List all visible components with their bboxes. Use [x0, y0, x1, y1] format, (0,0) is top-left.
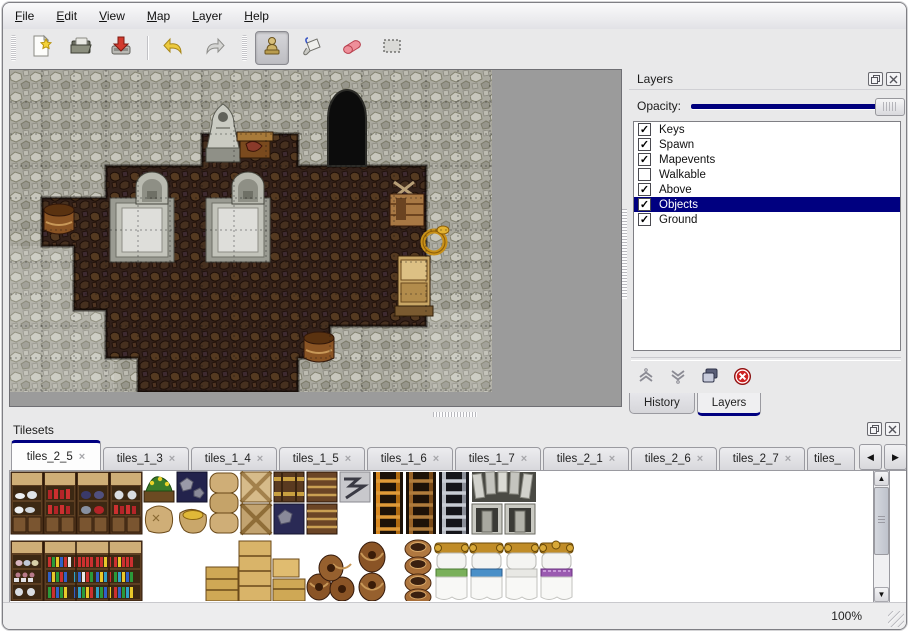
eraser-tool-button[interactable]	[335, 31, 369, 65]
duplicate-layer-button[interactable]	[699, 365, 721, 387]
selection-rect-icon	[379, 33, 405, 64]
tileset-tab[interactable]: tiles_1_3 ×	[103, 447, 189, 470]
shelf-pots-tile	[77, 472, 109, 534]
redo-icon	[201, 33, 227, 64]
tilesets-panel: Tilesets tiles_2_5 × tiles_1_3 × tiles_1…	[3, 421, 906, 603]
layers-panel: Layers Opacity: ✓ Keys	[629, 69, 905, 415]
tileset-tab[interactable]: tiles_2_1 ×	[543, 447, 629, 470]
menu-layer[interactable]: Layer	[192, 9, 222, 23]
save-button[interactable]	[104, 31, 138, 65]
layer-row-keys[interactable]: ✓ Keys	[634, 122, 900, 137]
tombstone-right	[232, 172, 264, 204]
bed-green-tile	[435, 543, 469, 600]
layer-visibility-checkbox[interactable]: ✓	[638, 183, 651, 196]
crate-x2-tile	[241, 504, 271, 534]
tileset-vertical-scrollbar[interactable]: ▲ ▼	[873, 470, 890, 603]
layer-name: Above	[659, 184, 692, 196]
tileset-tab-label: tiles_2_5	[27, 451, 73, 463]
tombstone-left	[136, 172, 168, 204]
striped-crate2-tile	[307, 504, 337, 534]
scroll-up-button[interactable]: ▲	[874, 471, 889, 486]
dark-crate-tile	[274, 472, 304, 502]
undo-button[interactable]	[157, 31, 191, 65]
paint-bucket-icon	[299, 33, 325, 64]
shelf-red-bottles-tile	[44, 472, 76, 534]
new-file-button[interactable]	[24, 31, 58, 65]
shelf-dishes-tile	[11, 472, 43, 534]
tileset-tab[interactable]: tiles_2_7 ×	[719, 447, 805, 470]
tileset-tab[interactable]: tiles_2_5 ×	[11, 440, 101, 470]
layer-name: Objects	[659, 199, 698, 211]
tileset-tiles-view[interactable]	[9, 470, 907, 603]
layer-name: Mapevents	[659, 154, 715, 166]
layer-visibility-checkbox[interactable]: ✓	[638, 198, 651, 211]
toolbar-separator	[147, 36, 148, 60]
bed-blue-tile	[470, 543, 504, 600]
layer-row-objects[interactable]: ✓ Objects	[634, 197, 900, 212]
tileset-tab-label: tiles_2_6	[645, 453, 691, 465]
clay-pots-tile	[405, 540, 431, 601]
float-tilesets-button[interactable]	[867, 422, 882, 436]
float-panel-button[interactable]	[868, 72, 883, 86]
barrel-pyramid-tiles	[307, 555, 354, 601]
delete-icon	[733, 367, 752, 386]
menu-map[interactable]: Map	[147, 9, 170, 23]
sack-tile	[145, 506, 172, 533]
tileset-tab-label: tiles_2_1	[557, 453, 603, 465]
tab-close-icon[interactable]: ×	[521, 453, 527, 465]
bed-purple-tile	[540, 541, 574, 600]
menu-help[interactable]: Help	[244, 9, 269, 23]
tileset-tab-label: tiles_1_3	[117, 453, 163, 465]
zoom-level-label: 100%	[831, 609, 862, 623]
fill-tool-button[interactable]	[295, 31, 329, 65]
close-tilesets-button[interactable]	[885, 422, 900, 436]
scroll-tabs-left-button[interactable]: ◀	[859, 444, 882, 470]
ladder-brown-tile	[406, 472, 436, 534]
tab-history[interactable]: History	[629, 393, 695, 414]
opacity-control: Opacity:	[637, 97, 897, 115]
tileset-tab-label: tiles_1_4	[205, 453, 251, 465]
window-resize-grip[interactable]	[888, 611, 904, 627]
layer-visibility-checkbox[interactable]: ✓	[638, 123, 651, 136]
close-panel-button[interactable]	[886, 72, 901, 86]
layer-name: Keys	[659, 124, 685, 136]
scroll-down-button[interactable]: ▼	[874, 587, 889, 602]
tileset-tab-label: tiles_1_6	[381, 453, 427, 465]
ladder-gray-tile	[439, 472, 469, 534]
tab-label: Layers	[712, 397, 747, 409]
toolbar-drag-handle[interactable]	[11, 35, 16, 61]
tab-close-icon[interactable]: ×	[345, 453, 351, 465]
close-icon	[888, 425, 897, 434]
down-arrows-icon	[669, 367, 687, 385]
tileset-tab-label: tiles_1_5	[293, 453, 339, 465]
menu-edit[interactable]: Edit	[56, 9, 77, 23]
status-bar: 100%	[3, 602, 906, 629]
opacity-slider[interactable]	[691, 104, 903, 109]
stamp-icon	[259, 33, 285, 64]
stacked-barrels-tile	[359, 542, 385, 601]
opacity-label: Opacity:	[637, 99, 681, 113]
tab-close-icon[interactable]: ×	[785, 453, 791, 465]
layer-name: Walkable	[659, 169, 706, 181]
tileset-tab[interactable]: tiles_	[807, 447, 855, 470]
layer-row-ground[interactable]: ✓ Ground	[634, 212, 900, 227]
layers-panel-titlebar: Layers	[629, 69, 905, 90]
menu-bar: File Edit View Map Layer Help	[3, 3, 906, 29]
layer-visibility-checkbox[interactable]: ✓	[638, 213, 651, 226]
move-layer-down-button[interactable]	[667, 365, 689, 387]
ore-crate-tile	[177, 472, 207, 502]
close-icon	[889, 75, 898, 84]
up-arrows-icon	[637, 367, 655, 385]
tab-label: History	[644, 397, 680, 409]
tab-close-icon[interactable]: ×	[79, 451, 85, 463]
map-canvas-view[interactable]	[9, 69, 622, 407]
float-icon	[870, 425, 879, 434]
move-layer-up-button[interactable]	[635, 365, 657, 387]
vertical-splitter[interactable]	[622, 69, 628, 407]
tab-close-icon[interactable]: ×	[169, 453, 175, 465]
ore-crate2-tile	[274, 504, 304, 534]
layer-list: ✓ Keys ✓ Spawn ✓ Mapevents ✓ Walkable ✓ …	[633, 121, 901, 351]
tab-close-icon[interactable]: ×	[609, 453, 615, 465]
layer-name: Ground	[659, 214, 697, 226]
scroll-tabs-right-button[interactable]: ▶	[884, 444, 907, 470]
float-icon	[871, 75, 880, 84]
tileset-tab[interactable]: tiles_1_6 ×	[367, 447, 453, 470]
desktop: File Edit View Map Layer Help	[0, 0, 909, 632]
layer-name: Spawn	[659, 139, 694, 151]
table	[237, 132, 273, 158]
delete-layer-button[interactable]	[731, 365, 753, 387]
layer-actions	[635, 363, 753, 389]
tab-close-icon[interactable]: ×	[433, 453, 439, 465]
sack-stack-tile	[210, 473, 238, 533]
bookshelf-tiles	[11, 541, 43, 601]
undo-icon	[161, 33, 187, 64]
tileset-tab-bar: tiles_2_5 × tiles_1_3 × tiles_1_4 × tile…	[11, 442, 907, 470]
stamp-tool-button[interactable]	[255, 31, 289, 65]
layer-row-above[interactable]: ✓ Above	[634, 182, 900, 197]
map-scene	[10, 70, 492, 392]
save-icon	[108, 33, 134, 64]
flower-box-tile	[144, 477, 174, 502]
tileset-tab[interactable]: tiles_2_6 ×	[631, 447, 717, 470]
rubble-floor-right	[422, 310, 492, 392]
ladder-orange-tile	[373, 472, 403, 534]
side-panel-tabs: History Layers	[629, 393, 763, 415]
crate-cluster-tiles	[206, 541, 305, 601]
open-folder-icon	[68, 33, 94, 64]
barrel-left	[44, 204, 74, 234]
metal-scrap-tile	[340, 472, 370, 502]
menu-view[interactable]: View	[99, 9, 125, 23]
rect-select-tool-button[interactable]	[375, 31, 409, 65]
layer-visibility-checkbox[interactable]: ✓	[638, 138, 651, 151]
tileset-tiles	[10, 471, 872, 601]
layers-panel-title: Layers	[637, 72, 673, 86]
tab-close-icon[interactable]: ×	[697, 453, 703, 465]
opacity-slider-handle[interactable]	[875, 98, 905, 116]
tab-close-icon[interactable]: ×	[257, 453, 263, 465]
layer-row-mapevents[interactable]: ✓ Mapevents	[634, 152, 900, 167]
tileset-tab[interactable]: tiles_1_5 ×	[279, 447, 365, 470]
tileset-tab-label: tiles_	[814, 453, 841, 465]
stone-arch-tiles	[472, 472, 536, 502]
toolbar	[3, 29, 906, 67]
crate-x-tile	[241, 472, 271, 502]
open-file-button[interactable]	[64, 31, 98, 65]
striped-crate-tile	[307, 472, 337, 502]
eraser-icon	[339, 33, 365, 64]
new-file-icon	[28, 33, 54, 64]
layer-visibility-checkbox[interactable]: ✓	[638, 153, 651, 166]
redo-button[interactable]	[197, 31, 231, 65]
bed-white-tile	[505, 543, 539, 600]
toolbar-drag-handle-2[interactable]	[242, 35, 247, 61]
stone-door2-tile	[505, 504, 535, 534]
tileset-tab[interactable]: tiles_1_4 ×	[191, 447, 277, 470]
tileset-tab-label: tiles_2_7	[733, 453, 779, 465]
tab-layers[interactable]: Layers	[697, 393, 762, 416]
bookshelf-books-tiles	[44, 541, 142, 601]
shelf-jars-tile	[110, 472, 142, 534]
tileset-tab[interactable]: tiles_1_7 ×	[455, 447, 541, 470]
wooden-cabinet	[395, 256, 433, 316]
duplicate-icon	[701, 367, 719, 385]
map-editor-window: File Edit View Map Layer Help	[2, 2, 907, 630]
layer-row-walkable[interactable]: ✓ Walkable	[634, 167, 900, 182]
menu-file[interactable]: File	[15, 9, 34, 23]
tileset-tab-label: tiles_1_7	[469, 453, 515, 465]
layer-visibility-checkbox[interactable]: ✓	[638, 168, 651, 181]
scrollbar-thumb[interactable]	[874, 487, 889, 555]
stone-door-tile	[472, 504, 502, 534]
tilesets-panel-title: Tilesets	[13, 423, 54, 437]
panel-separator	[631, 357, 901, 361]
cave-entrance	[328, 90, 366, 166]
gold-bag-tile	[180, 509, 207, 533]
layer-row-spawn[interactable]: ✓ Spawn	[634, 137, 900, 152]
